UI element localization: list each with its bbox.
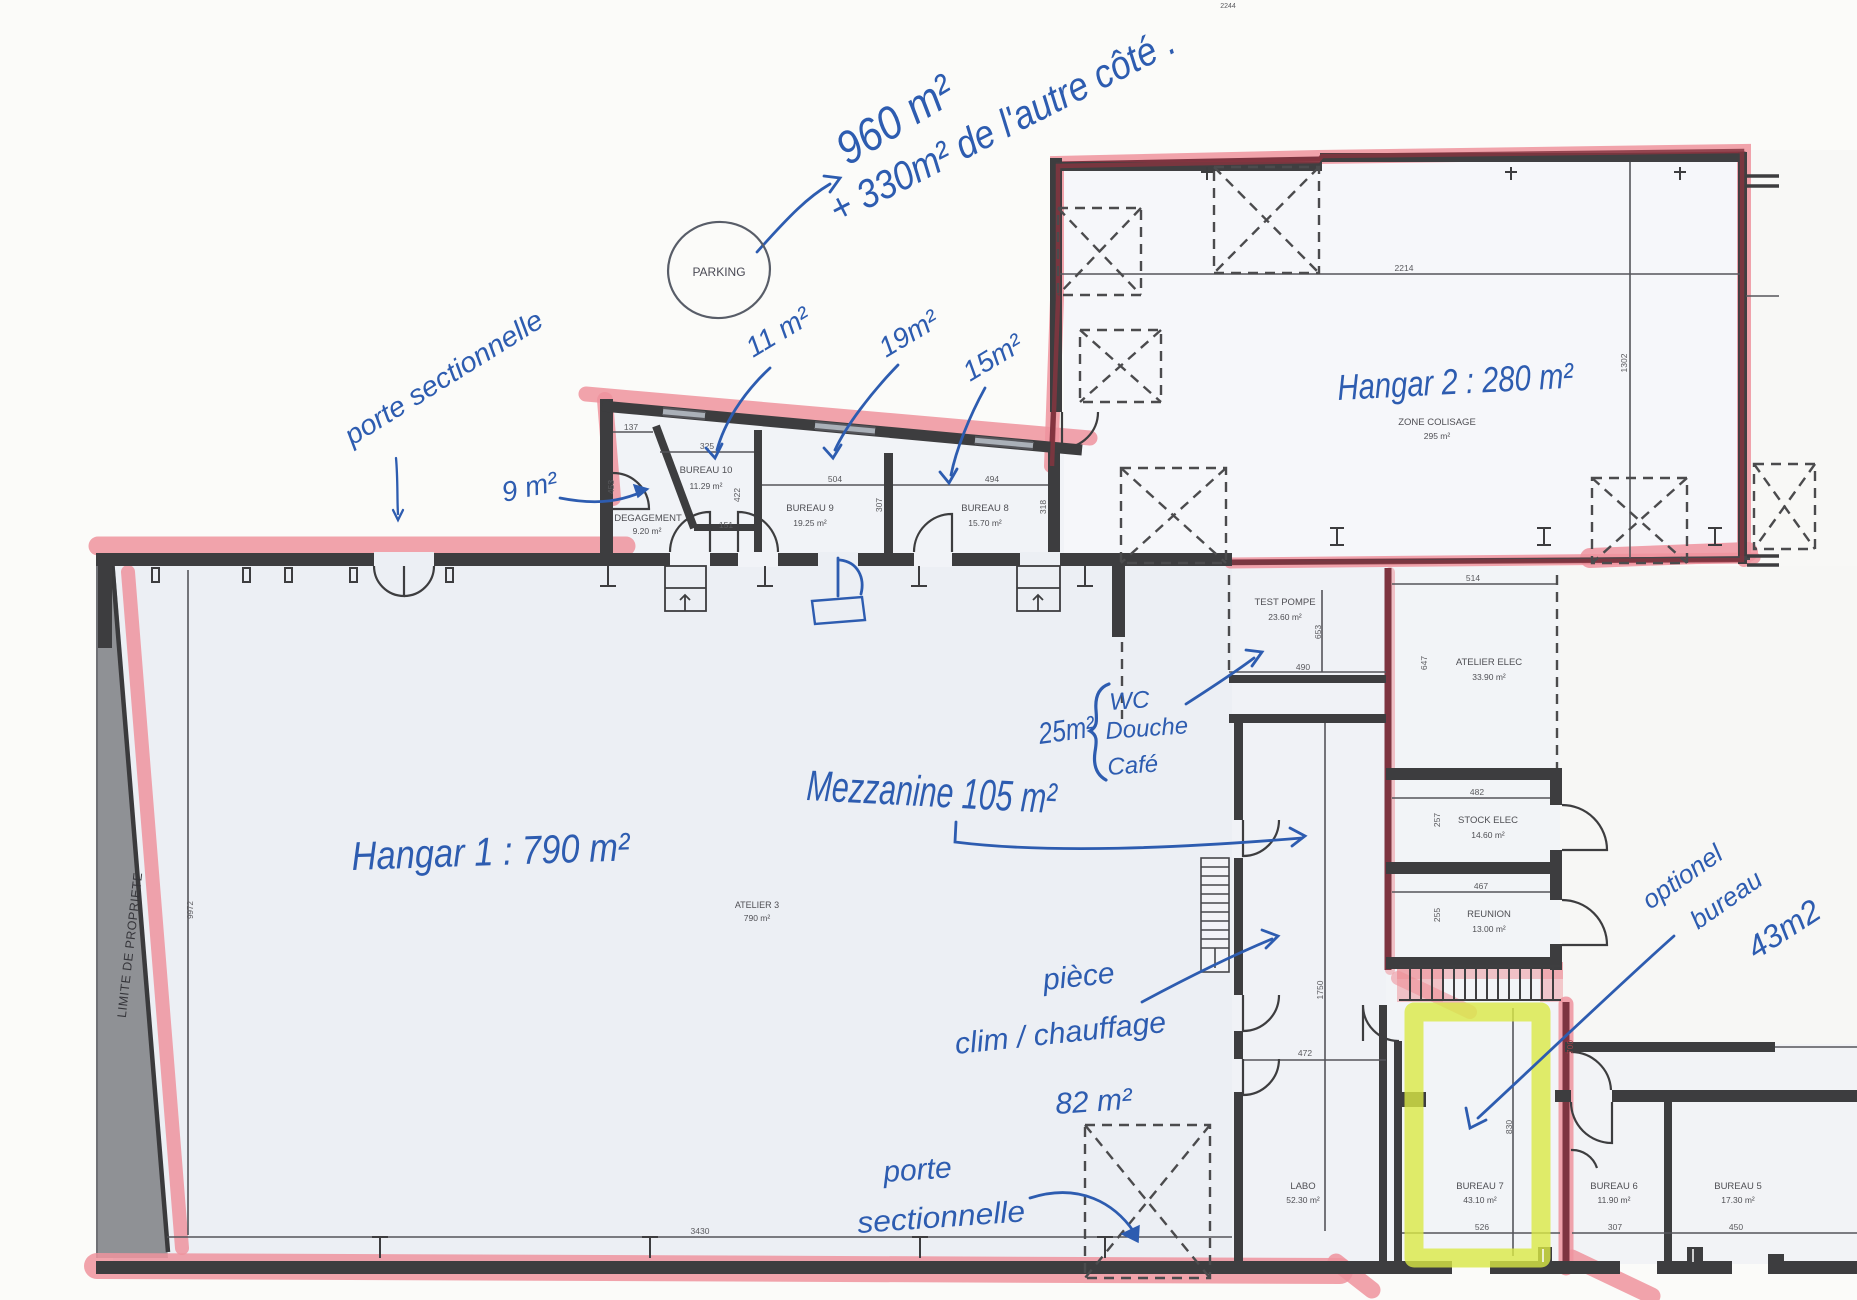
svg-text:ATELIER 3: ATELIER 3 [735, 900, 779, 910]
svg-text:BUREAU 5: BUREAU 5 [1714, 1181, 1762, 1192]
svg-text:9.20 m²: 9.20 m² [633, 526, 662, 536]
svg-text:307: 307 [1608, 1222, 1622, 1232]
svg-text:52.30 m²: 52.30 m² [1286, 1195, 1320, 1205]
svg-text:WC: WC [1109, 686, 1151, 716]
svg-text:43.10 m²: 43.10 m² [1463, 1195, 1497, 1205]
svg-text:472: 472 [1298, 1048, 1312, 1058]
svg-text:482: 482 [1470, 787, 1484, 797]
svg-text:15.70 m²: 15.70 m² [968, 518, 1002, 528]
svg-text:450: 450 [1729, 1222, 1743, 1232]
svg-text:467: 467 [1474, 881, 1488, 891]
svg-text:BUREAU 8: BUREAU 8 [961, 503, 1009, 514]
svg-text:BUREAU 7: BUREAU 7 [1456, 1181, 1504, 1192]
svg-text:TEST POMPE: TEST POMPE [1254, 597, 1315, 608]
svg-text:STOCK ELEC: STOCK ELEC [1458, 815, 1518, 826]
svg-text:REUNION: REUNION [1467, 909, 1511, 920]
svg-text:porte: porte [881, 1151, 953, 1189]
svg-text:1750: 1750 [1315, 980, 1325, 999]
svg-text:830: 830 [1504, 1120, 1514, 1134]
svg-text:Douche: Douche [1105, 712, 1189, 745]
svg-text:11.90 m²: 11.90 m² [1598, 1195, 1631, 1205]
svg-text:790 m²: 790 m² [744, 913, 771, 923]
svg-text:453: 453 [606, 480, 616, 494]
svg-text:3430: 3430 [691, 1226, 710, 1236]
svg-text:14.60 m²: 14.60 m² [1471, 830, 1505, 840]
svg-text:526: 526 [1475, 1222, 1489, 1232]
svg-text:82 m²: 82 m² [1054, 1083, 1134, 1121]
svg-text:700: 700 [1565, 1040, 1575, 1054]
svg-text:13.00 m²: 13.00 m² [1472, 924, 1506, 934]
svg-text:490: 490 [1296, 662, 1310, 672]
svg-text:23.60 m²: 23.60 m² [1268, 612, 1302, 622]
svg-text:137: 137 [624, 422, 638, 432]
svg-text:255: 255 [1432, 908, 1442, 922]
svg-text:17.30 m²: 17.30 m² [1721, 1195, 1755, 1205]
svg-text:422: 422 [732, 488, 742, 502]
svg-text:151: 151 [719, 520, 733, 530]
svg-text:653: 653 [1313, 625, 1323, 639]
svg-text:1302: 1302 [1619, 353, 1629, 372]
svg-text:318: 318 [1038, 500, 1048, 514]
svg-text:2244: 2244 [1220, 3, 1236, 10]
svg-text:BUREAU 6: BUREAU 6 [1590, 1181, 1638, 1192]
svg-text:504: 504 [828, 474, 842, 484]
svg-text:BUREAU 10: BUREAU 10 [680, 465, 733, 476]
svg-text:494: 494 [985, 474, 999, 484]
svg-text:BUREAU 9: BUREAU 9 [786, 503, 834, 514]
svg-text:11.29 m²: 11.29 m² [690, 481, 723, 491]
svg-text:Café: Café [1107, 751, 1159, 781]
svg-text:514: 514 [1466, 573, 1480, 583]
svg-text:295 m²: 295 m² [1424, 431, 1451, 441]
svg-text:33.90 m²: 33.90 m² [1472, 672, 1506, 682]
svg-text:2214: 2214 [1395, 263, 1414, 273]
svg-text:ZONE COLISAGE: ZONE COLISAGE [1398, 417, 1476, 428]
svg-text:9972: 9972 [186, 901, 195, 919]
svg-text:19.25 m²: 19.25 m² [793, 518, 827, 528]
svg-text:PARKING: PARKING [692, 265, 745, 279]
svg-text:ATELIER ELEC: ATELIER ELEC [1456, 657, 1522, 668]
svg-text:257: 257 [1432, 813, 1442, 827]
svg-text:307: 307 [874, 498, 884, 512]
svg-text:LABO: LABO [1290, 1181, 1315, 1192]
svg-text:DEGAGEMENT: DEGAGEMENT [614, 513, 682, 524]
svg-text:647: 647 [1419, 656, 1429, 670]
